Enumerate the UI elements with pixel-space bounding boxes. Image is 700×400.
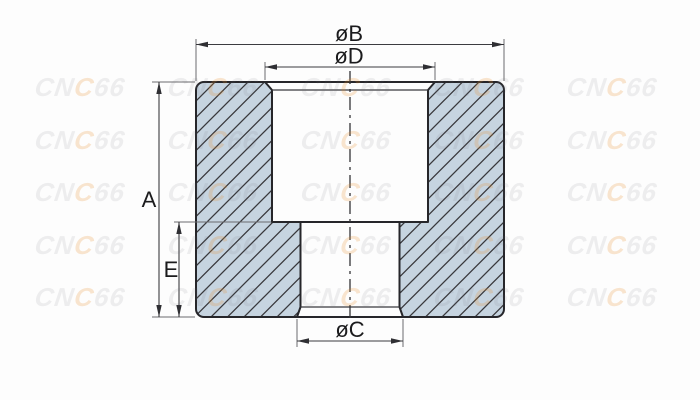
label-small-bore-diameter: øC [335, 317, 364, 342]
label-lower-bore-height: E [164, 257, 179, 282]
arrow-e-bottom [176, 305, 181, 317]
arrow-ob-right [492, 42, 504, 47]
arrow-e-top [176, 222, 181, 234]
arrow-oc-left [297, 338, 309, 343]
bushing-section-drawing: øB øD A E øC [0, 0, 700, 400]
label-counterbore-diameter: øD [334, 44, 363, 69]
technical-drawing-canvas: øB øD A E øC CNC66CNC66CNC66CNC66CNC66CN… [0, 0, 700, 400]
arrow-od-left [265, 64, 277, 69]
label-outer-diameter: øB [335, 21, 363, 46]
arrow-od-right [423, 64, 435, 69]
arrow-ob-left [196, 42, 208, 47]
arrow-a-bottom [156, 305, 161, 317]
label-overall-height: A [142, 187, 157, 212]
arrow-a-top [156, 82, 161, 94]
arrow-oc-right [391, 338, 403, 343]
